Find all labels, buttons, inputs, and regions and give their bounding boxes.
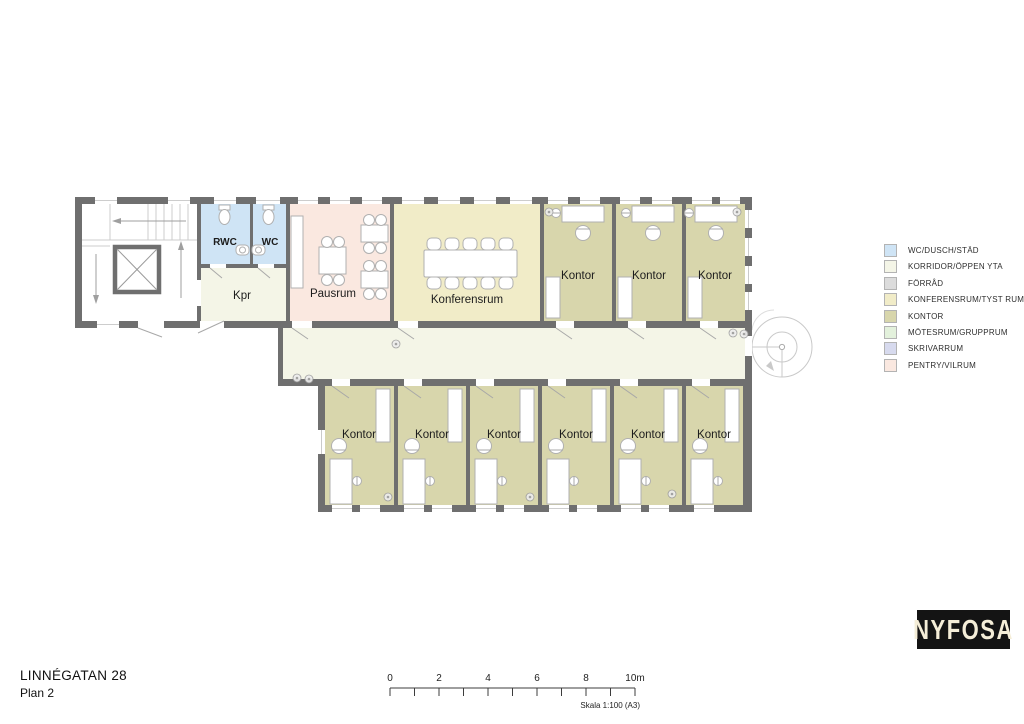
legend-swatch-wc bbox=[884, 244, 897, 257]
room-label-kontor: Kontor bbox=[559, 429, 593, 441]
page: RWC WC Kpr Pausrum Konferensrum Kontor K… bbox=[0, 0, 1024, 724]
nyfosa-logo: NYFOSA bbox=[917, 610, 1010, 649]
legend-label: MÖTESRUM/GRUPPRUM bbox=[908, 328, 1008, 337]
corridor bbox=[283, 328, 745, 379]
room-label-kontor: Kontor bbox=[632, 270, 666, 282]
legend-item: KORRIDOR/ÖPPEN YTA bbox=[884, 260, 1024, 273]
room-label-kontor: Kontor bbox=[698, 270, 732, 282]
legend-label: KONFERENSRUM/TYST RUM bbox=[908, 295, 1024, 304]
room-label-kontor: Kontor bbox=[631, 429, 665, 441]
legend-item: PENTRY/VILRUM bbox=[884, 359, 1024, 372]
scale-tick-label: 8 bbox=[583, 673, 589, 684]
legend: WC/DUSCH/STÄD KORRIDOR/ÖPPEN YTA FÖRRÅD … bbox=[884, 244, 1024, 372]
scale-tick-label: 0 bbox=[387, 673, 393, 684]
scale-tick-label: 10m bbox=[625, 673, 644, 684]
legend-item: KONTOR bbox=[884, 310, 1024, 323]
legend-swatch-motesrum bbox=[884, 326, 897, 339]
room-label-kontor: Kontor bbox=[415, 429, 449, 441]
legend-swatch-pentry bbox=[884, 359, 897, 372]
legend-item: KONFERENSRUM/TYST RUM bbox=[884, 293, 1024, 306]
legend-swatch-konferensrum bbox=[884, 293, 897, 306]
scale-tick-label: 4 bbox=[485, 673, 491, 684]
legend-label: SKRIVARRUM bbox=[908, 344, 963, 353]
legend-swatch-kontor bbox=[884, 310, 897, 323]
legend-item: FÖRRÅD bbox=[884, 277, 1024, 290]
room-label-kontor: Kontor bbox=[487, 429, 521, 441]
room-label-kontor: Kontor bbox=[561, 270, 595, 282]
legend-label: WC/DUSCH/STÄD bbox=[908, 246, 979, 255]
scale-bar: 0 2 4 6 8 10m Skala 1:100 (A3) bbox=[382, 670, 650, 716]
plan-name: Plan 2 bbox=[20, 686, 127, 700]
legend-item: WC/DUSCH/STÄD bbox=[884, 244, 1024, 257]
legend-swatch-forrad bbox=[884, 277, 897, 290]
legend-label: PENTRY/VILRUM bbox=[908, 361, 976, 370]
room-label-konferensrum: Konferensrum bbox=[431, 294, 503, 306]
scale-tick-label: 6 bbox=[534, 673, 540, 684]
room-label-kontor: Kontor bbox=[342, 429, 376, 441]
logo-text: NYFOSA bbox=[913, 613, 1014, 646]
title-block: LINNÉGATAN 28 Plan 2 bbox=[20, 668, 127, 700]
scale-caption: Skala 1:100 (A3) bbox=[580, 701, 640, 710]
room-label-kpr: Kpr bbox=[233, 290, 251, 302]
legend-label: KONTOR bbox=[908, 312, 944, 321]
floor-plan: RWC WC Kpr Pausrum Konferensrum Kontor K… bbox=[0, 0, 1024, 724]
room-label-rwc: RWC bbox=[213, 237, 237, 248]
legend-swatch-skrivarrum bbox=[884, 342, 897, 355]
legend-label: FÖRRÅD bbox=[908, 279, 943, 288]
legend-item: SKRIVARRUM bbox=[884, 342, 1024, 355]
legend-label: KORRIDOR/ÖPPEN YTA bbox=[908, 262, 1003, 271]
address-title: LINNÉGATAN 28 bbox=[20, 668, 127, 683]
room-label-wc: WC bbox=[262, 237, 279, 248]
spiral-staircase bbox=[750, 310, 812, 377]
scale-tick-label: 2 bbox=[436, 673, 442, 684]
legend-item: MÖTESRUM/GRUPPRUM bbox=[884, 326, 1024, 339]
legend-swatch-korridor bbox=[884, 260, 897, 273]
room-label-pausrum: Pausrum bbox=[310, 288, 356, 300]
room-label-kontor: Kontor bbox=[697, 429, 731, 441]
